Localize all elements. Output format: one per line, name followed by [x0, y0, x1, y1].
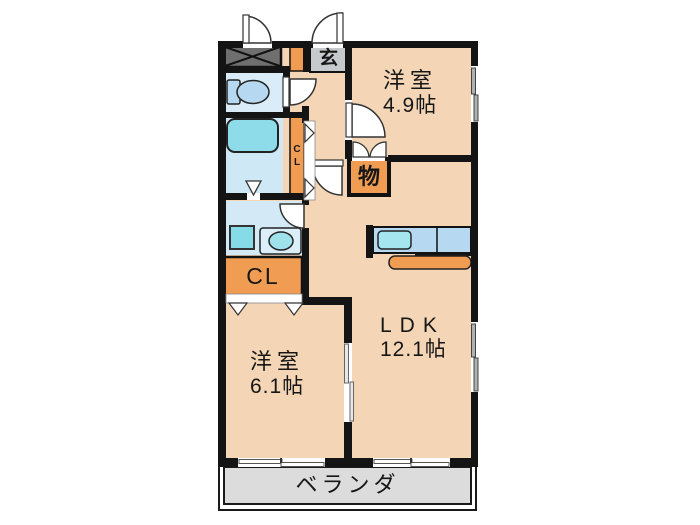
toilet-bowl-icon: [237, 81, 269, 104]
balcony-label: ベランダ: [224, 473, 471, 498]
floor-plan: 洋室 4.9帖 LDK 12.1帖 洋室 6.1帖 ベランダ 玄 物 CL C …: [0, 0, 700, 525]
bedroom2-name: 洋室: [250, 350, 304, 375]
door-leaf: [346, 103, 352, 137]
wall: [222, 66, 290, 73]
storage-label: 物: [349, 159, 389, 195]
kitchen-sink-icon: [378, 231, 411, 249]
wall: [222, 112, 309, 118]
door-leaf: [243, 15, 249, 43]
window-pane: [239, 460, 282, 464]
wall: [450, 458, 478, 467]
bedroom2-size: 6.1帖: [250, 375, 304, 399]
wall: [471, 122, 478, 322]
wall: [343, 41, 478, 48]
wall: [303, 45, 310, 72]
storage-name: 物: [358, 165, 380, 190]
entrance-label: 玄: [310, 46, 347, 72]
bedroom1-label: 洋室 4.9帖: [383, 69, 437, 117]
window-rail-tick: [410, 458, 412, 463]
bedroom1-name: 洋室: [383, 69, 437, 94]
window-pane: [411, 463, 449, 467]
window-pane: [474, 95, 478, 121]
shoe-cabinet: [290, 47, 304, 71]
washing-machine-icon: [230, 226, 254, 249]
window-pane: [374, 460, 412, 464]
wall: [344, 300, 352, 343]
door-leaf: [337, 13, 343, 43]
sliding-door-pane: [345, 344, 349, 383]
wall: [471, 41, 478, 66]
floor-plan-graphic: [0, 0, 700, 525]
ldk-label: LDK 12.1帖: [380, 314, 447, 361]
ldk-size: 12.1帖: [380, 338, 447, 362]
window-pane: [281, 463, 324, 467]
window-rail-tick: [280, 458, 282, 463]
kitchen-stub-wall: [366, 225, 373, 258]
wall: [302, 228, 309, 305]
wall: [388, 155, 478, 162]
window-pane: [474, 358, 478, 391]
bedroom2-label: 洋室 6.1帖: [250, 350, 304, 398]
wall: [222, 193, 247, 200]
wall: [218, 458, 238, 467]
wall: [345, 140, 352, 159]
ldk-name: LDK: [380, 314, 447, 338]
bathtub-icon: [227, 119, 278, 152]
closet-name: CL: [246, 264, 279, 290]
closet-label: CL: [224, 257, 302, 296]
hall-closet-letter-c: C: [293, 143, 300, 157]
entrance-name: 玄: [319, 48, 338, 69]
hall-closet-letter-l: L: [294, 156, 300, 170]
wall: [344, 422, 352, 458]
wall: [325, 458, 373, 467]
wall: [260, 193, 309, 200]
wall: [471, 392, 478, 467]
balcony-name: ベランダ: [224, 473, 471, 498]
bedroom1-size: 4.9帖: [383, 94, 437, 118]
wall: [302, 106, 309, 123]
door-leaf: [283, 77, 289, 107]
wall: [283, 66, 290, 78]
counter-bar: [389, 256, 471, 269]
washbasin-bowl-icon: [269, 232, 293, 250]
window-pane: [472, 68, 476, 94]
wall: [218, 41, 226, 467]
window-pane: [472, 324, 476, 357]
hall-closet-label: C L: [290, 139, 304, 173]
sliding-door-pane: [350, 382, 354, 421]
